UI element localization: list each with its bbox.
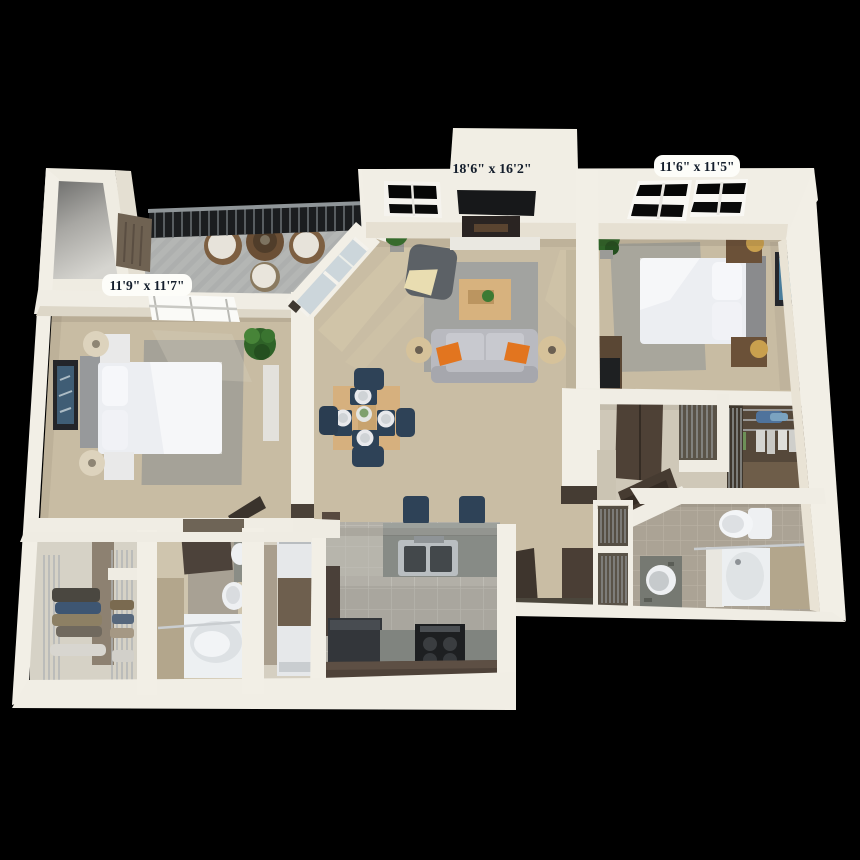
svg-text:11'9" x 11'7": 11'9" x 11'7" <box>109 278 184 293</box>
svg-text:11'6" x 11'5": 11'6" x 11'5" <box>659 159 734 174</box>
svg-text:18'6" x 16'2": 18'6" x 16'2" <box>452 162 531 177</box>
